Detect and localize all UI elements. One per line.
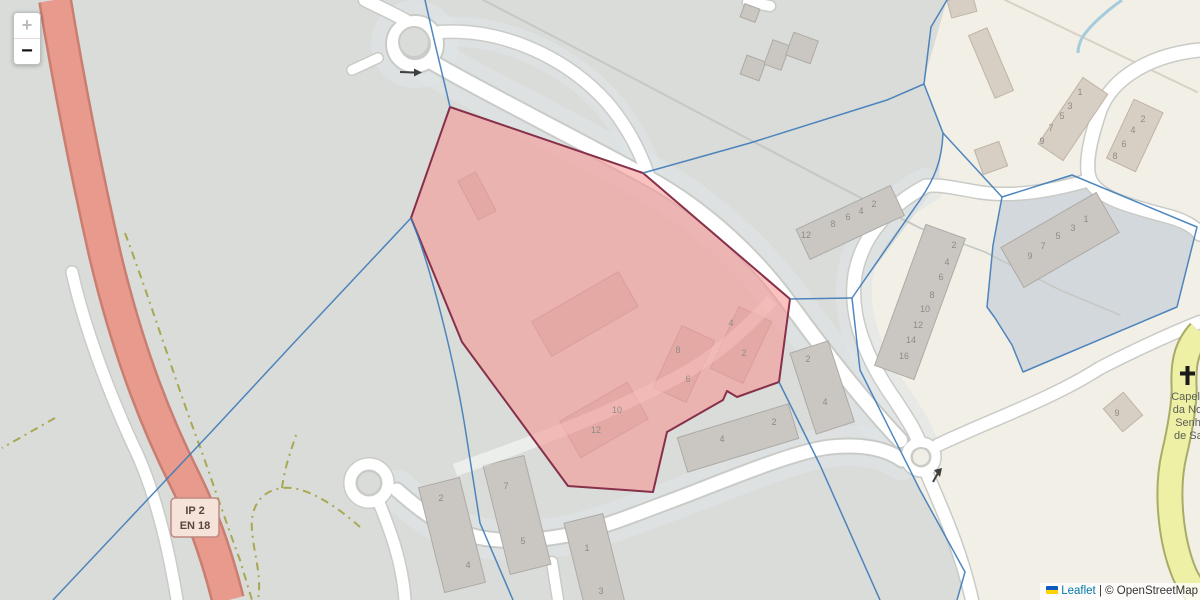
house-number: 6 bbox=[938, 272, 943, 282]
house-number: 1 bbox=[1077, 87, 1082, 97]
house-number: 9 bbox=[1039, 136, 1044, 146]
house-number: 2 bbox=[1140, 114, 1145, 124]
attribution-separator: | bbox=[1096, 585, 1105, 597]
house-number: 8 bbox=[1112, 151, 1117, 161]
house-number: 6 bbox=[1121, 139, 1126, 149]
road-ref-line2: EN 18 bbox=[180, 520, 211, 532]
house-number: 7 bbox=[1048, 123, 1053, 133]
house-number: 2 bbox=[871, 199, 876, 209]
zoom-out-button[interactable]: − bbox=[14, 38, 40, 64]
house-number: 7 bbox=[1040, 241, 1045, 251]
house-number: 6 bbox=[685, 374, 690, 384]
road-shield: IP 2 EN 18 bbox=[171, 498, 219, 537]
house-number: 8 bbox=[830, 219, 835, 229]
house-number: 12 bbox=[591, 425, 601, 435]
house-number: 16 bbox=[899, 351, 909, 361]
house-number: 5 bbox=[1059, 111, 1064, 121]
house-number: 4 bbox=[465, 560, 470, 570]
house-number: 4 bbox=[728, 318, 733, 328]
map-canvas[interactable]: 8642101242242475131286422468101214169753… bbox=[0, 0, 1200, 600]
house-number: 8 bbox=[929, 290, 934, 300]
house-number: 3 bbox=[1067, 101, 1072, 111]
house-number: 4 bbox=[719, 434, 724, 444]
osm-copyright: © OpenStreetMap bbox=[1105, 585, 1198, 597]
house-number: 4 bbox=[858, 206, 863, 216]
road-ref-line1: IP 2 bbox=[185, 505, 204, 517]
house-number: 2 bbox=[771, 417, 776, 427]
house-number: 2 bbox=[741, 348, 746, 358]
house-number: 9 bbox=[1027, 251, 1032, 261]
map-tiles: 8642101242242475131286422468101214169753… bbox=[0, 0, 1200, 600]
zoom-in-button[interactable]: + bbox=[14, 13, 40, 38]
house-number: 10 bbox=[612, 405, 622, 415]
house-number: 12 bbox=[913, 320, 923, 330]
house-number: 12 bbox=[801, 230, 811, 240]
house-number: 6 bbox=[845, 212, 850, 222]
house-number: 3 bbox=[598, 586, 603, 596]
house-number: 4 bbox=[944, 257, 949, 267]
house-number: 1 bbox=[584, 543, 589, 553]
leaflet-link[interactable]: Leaflet bbox=[1061, 585, 1096, 597]
house-number: 5 bbox=[520, 536, 525, 546]
attribution-bar: Leaflet | © OpenStreetMap bbox=[1040, 583, 1200, 600]
house-number: 8 bbox=[675, 345, 680, 355]
house-number: 14 bbox=[906, 335, 916, 345]
house-number: 5 bbox=[1055, 231, 1060, 241]
house-number: 4 bbox=[822, 397, 827, 407]
house-number: 3 bbox=[1070, 223, 1075, 233]
house-number: 9 bbox=[1114, 408, 1119, 418]
house-number: 10 bbox=[920, 304, 930, 314]
chapel-label: Capelinhada NossaSenhorade Santa bbox=[1171, 391, 1200, 442]
house-number: 7 bbox=[503, 481, 508, 491]
zoom-control: + − bbox=[13, 12, 41, 65]
house-number: 2 bbox=[951, 240, 956, 250]
house-number: 4 bbox=[1130, 125, 1135, 135]
ukraine-flag-icon bbox=[1046, 586, 1058, 594]
house-number: 2 bbox=[805, 354, 810, 364]
house-number: 1 bbox=[1083, 214, 1088, 224]
house-number: 2 bbox=[438, 493, 443, 503]
